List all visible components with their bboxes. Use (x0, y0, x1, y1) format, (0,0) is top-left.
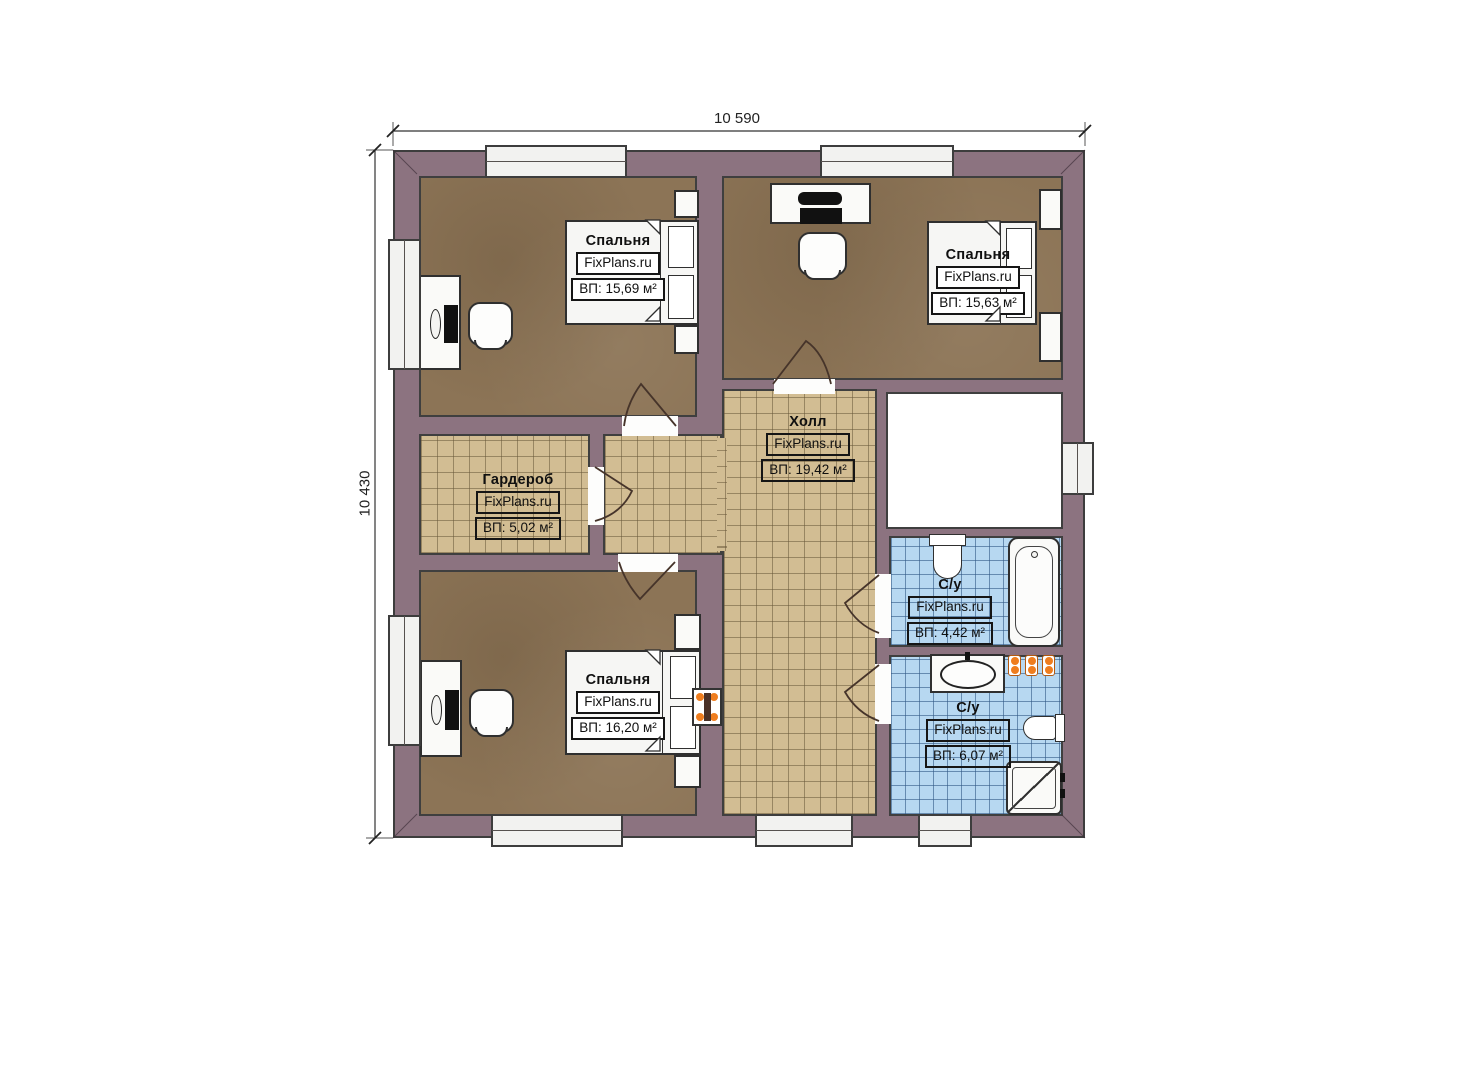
dimension-tick (387, 125, 399, 137)
window (755, 814, 853, 847)
shower-handle (1060, 789, 1065, 798)
shower-symbol (1006, 761, 1062, 815)
towel-hook-icon (1008, 655, 1021, 676)
room-name: С/у (938, 577, 961, 593)
room-area: ВП: 15,63 м² (931, 292, 1025, 315)
brand-watermark: FixPlans.ru (766, 433, 850, 456)
office-chair-symbol (798, 232, 847, 276)
toilet-symbol (929, 534, 966, 579)
nightstand-symbol (1039, 312, 1062, 362)
speaker-symbol (431, 695, 442, 725)
towel-hook-icon (1042, 655, 1055, 676)
room-name: С/у (956, 700, 979, 716)
room-area: ВП: 6,07 м² (925, 745, 1011, 768)
brand-watermark: FixPlans.ru (936, 266, 1020, 289)
brand-watermark: FixPlans.ru (476, 491, 560, 514)
floor-plan-canvas: 10 590 10 430 (0, 0, 1473, 1080)
window (485, 145, 627, 178)
room-label-bedroom-top-left: Спальня FixPlans.ru ВП: 15,69 м² (553, 233, 683, 301)
nightstand-symbol (674, 190, 699, 218)
nightstand-symbol (674, 614, 701, 650)
room-label-hall: Холл FixPlans.ru ВП: 19,42 м² (743, 414, 873, 482)
printer-symbol (798, 192, 842, 205)
dimension-tick (369, 144, 381, 156)
sink-vanity-symbol (930, 654, 1005, 693)
computer-monitor-symbol (444, 305, 458, 343)
room-name: Спальня (586, 233, 651, 249)
bathtub-symbol (1008, 537, 1060, 647)
nightstand-symbol (674, 325, 699, 354)
speaker-symbol (430, 309, 441, 339)
door-opening-bedroom-bottom-left (618, 554, 678, 572)
dimension-width-label: 10 590 (697, 110, 777, 127)
dimension-tick (369, 832, 381, 844)
printer-symbol (800, 208, 842, 224)
dimension-height-label: 10 430 (357, 454, 374, 534)
hall-corridor-opening (717, 438, 727, 551)
door-opening-bedroom-top-left (622, 416, 678, 436)
room-floor-unlabeled (886, 392, 1063, 529)
room-name: Гардероб (483, 472, 554, 488)
dimension-tick (1079, 125, 1091, 137)
door-opening-bedroom-top-right (774, 379, 835, 394)
office-chair-symbol (469, 689, 514, 733)
door-opening-wardrobe (588, 467, 604, 525)
building-outline: Спальня FixPlans.ru ВП: 15,69 м² Спальня… (393, 150, 1085, 838)
room-area: ВП: 5,02 м² (475, 517, 561, 540)
window (491, 814, 623, 847)
room-area: ВП: 15,69 м² (571, 278, 665, 301)
room-label-bedroom-bottom-left: Спальня FixPlans.ru ВП: 16,20 м² (553, 672, 683, 740)
computer-monitor-symbol (445, 690, 459, 730)
corridor-floor (603, 434, 722, 555)
room-label-bathroom-upper: С/у FixPlans.ru ВП: 4,42 м² (885, 577, 1015, 645)
drain-symbol (1031, 551, 1038, 558)
sink-symbol (940, 660, 996, 689)
brand-watermark: FixPlans.ru (576, 691, 660, 714)
room-area: ВП: 16,20 м² (571, 717, 665, 740)
room-area: ВП: 4,42 м² (907, 622, 993, 645)
window (1061, 442, 1094, 495)
nightstand-symbol (674, 755, 701, 788)
shower-handle (1060, 773, 1065, 782)
heater-symbol (692, 688, 722, 726)
office-chair-symbol (468, 302, 513, 346)
window (820, 145, 954, 178)
faucet-symbol (965, 652, 970, 660)
window (388, 615, 421, 746)
room-label-bedroom-top-right: Спальня FixPlans.ru ВП: 15,63 м² (913, 247, 1043, 315)
room-label-wardrobe: Гардероб FixPlans.ru ВП: 5,02 м² (453, 472, 583, 540)
room-name: Спальня (946, 247, 1011, 263)
brand-watermark: FixPlans.ru (908, 596, 992, 619)
nightstand-symbol (1039, 189, 1062, 230)
brand-watermark: FixPlans.ru (576, 252, 660, 275)
door-opening-bathroom-lower (875, 664, 891, 724)
window (388, 239, 421, 370)
room-label-bathroom-lower: С/у FixPlans.ru ВП: 6,07 м² (903, 700, 1033, 768)
room-area: ВП: 19,42 м² (761, 459, 855, 482)
room-name: Спальня (586, 672, 651, 688)
room-name: Холл (789, 414, 827, 430)
towel-hook-icon (1025, 655, 1038, 676)
window (918, 814, 972, 847)
brand-watermark: FixPlans.ru (926, 719, 1010, 742)
